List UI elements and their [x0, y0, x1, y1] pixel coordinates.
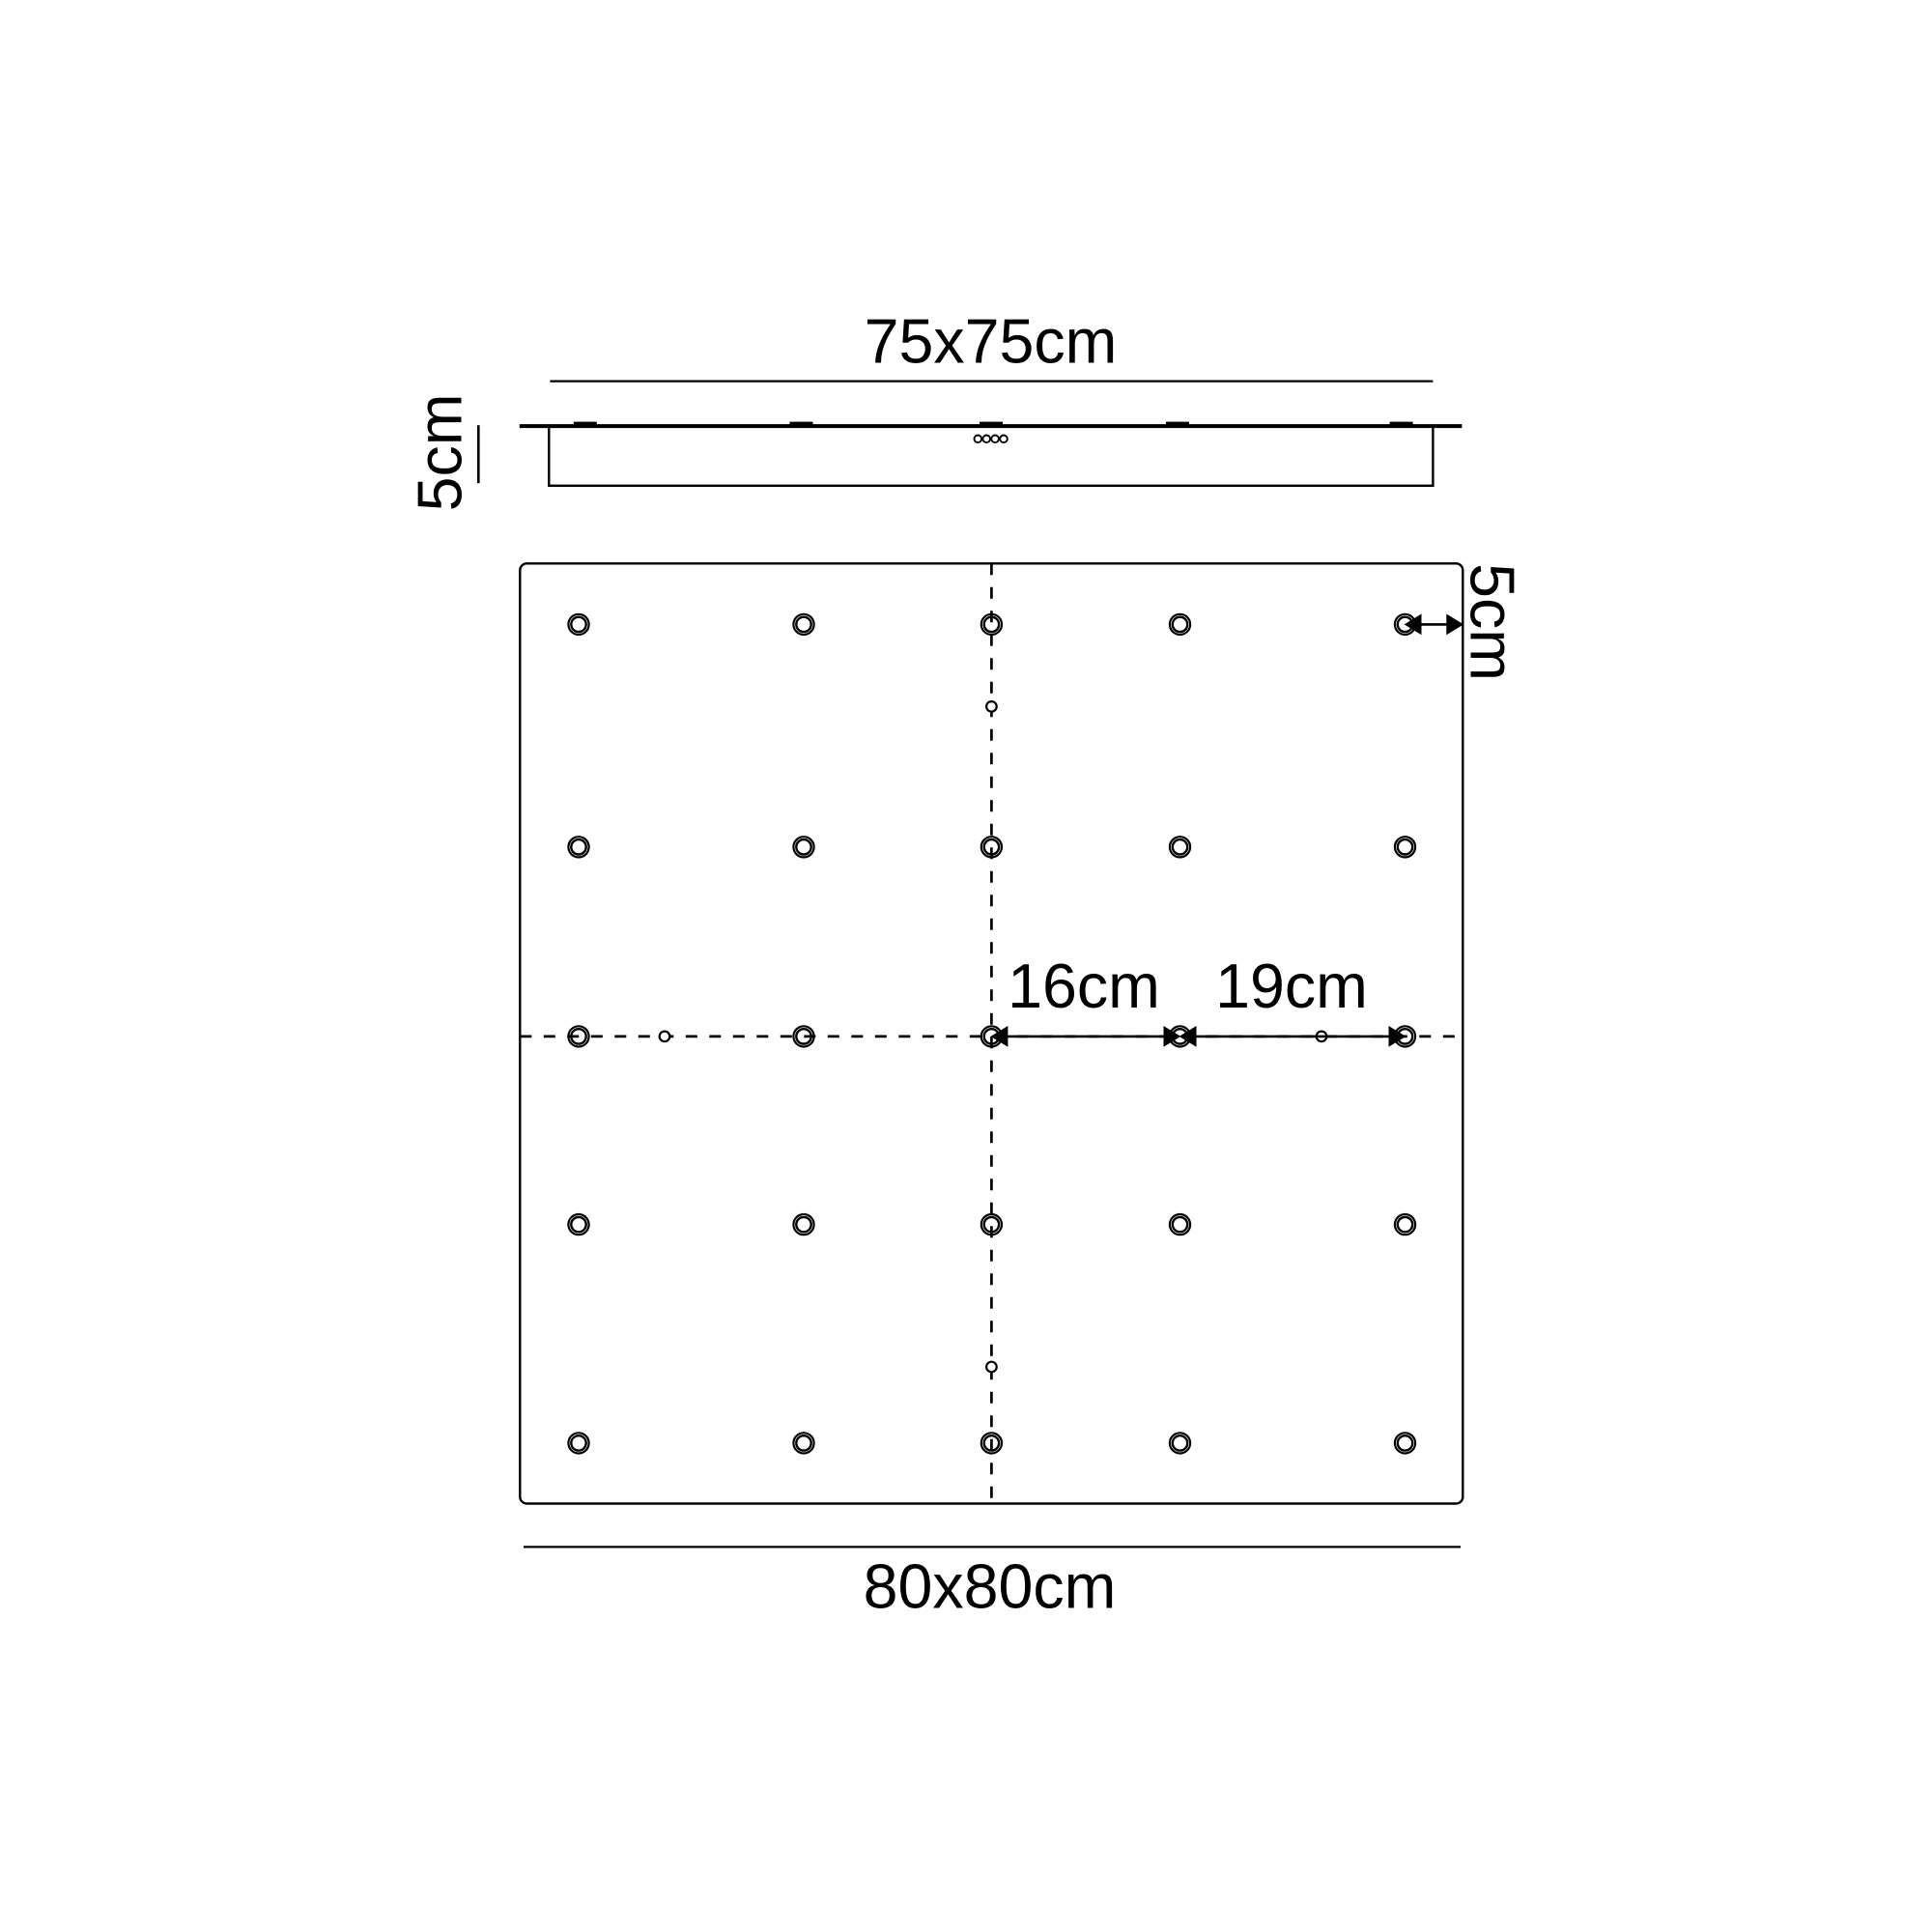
svg-text:5cm: 5cm — [1457, 563, 1526, 681]
svg-text:5cm: 5cm — [406, 394, 475, 512]
svg-text:75x75cm: 75x75cm — [865, 307, 1118, 377]
svg-text:80x80cm: 80x80cm — [864, 1552, 1117, 1622]
svg-text:19cm: 19cm — [1215, 952, 1368, 1021]
svg-text:16cm: 16cm — [1008, 952, 1160, 1021]
